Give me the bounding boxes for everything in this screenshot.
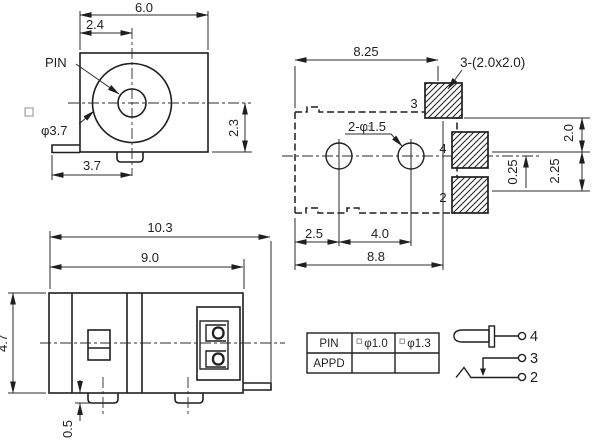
dim-height: 4.7 [0, 334, 10, 352]
pin-spec-table: PIN φ1.0 φ1.3 APPD [307, 333, 439, 373]
artifact-square [357, 339, 362, 344]
artifact-square [400, 339, 405, 344]
pad3-label: 3 [410, 96, 417, 111]
dim-boss-height: 0.5 [60, 420, 75, 438]
dim-footprint-bottom-width: 8.8 [367, 249, 385, 264]
schematic-terminal-2: 2 [530, 370, 538, 386]
dim-barrel-diameter: φ3.7 [41, 123, 68, 138]
contact-arrow-icon [480, 369, 486, 377]
front-left-lug [52, 145, 80, 153]
dim-hole-pitch: 4.0 [371, 226, 389, 241]
pad4-label: 4 [439, 141, 446, 156]
dim-pad-gap: 2.0 [561, 124, 576, 142]
holes-leader [345, 134, 402, 146]
pin-flange-symbol [489, 326, 495, 347]
dim-footprint-top-width: 8.25 [353, 44, 378, 59]
schematic-terminal-4: 4 [530, 329, 538, 345]
dim-hole-offset: 2.5 [305, 226, 323, 241]
table-cell-pin: PIN [319, 338, 338, 350]
terminal-2-node [518, 373, 525, 380]
footprint-bottom-edge [295, 208, 457, 213]
side-view: 10.3 9.0 4.7 0.5 [0, 220, 285, 438]
dim-center-offset: 0.25 [505, 159, 520, 184]
artifact-square [25, 108, 33, 116]
front-view: 6.0 2.4 PIN φ3.7 2.3 3.7 [25, 0, 252, 180]
center-pin-symbol [454, 330, 489, 342]
barrel-leader [79, 111, 94, 124]
table-cell-appd: APPD [313, 358, 344, 370]
side-right-lug [243, 383, 271, 390]
pad-2 [452, 177, 488, 213]
pad2-label: 2 [439, 190, 446, 205]
dim-overall-width: 10.3 [147, 220, 172, 235]
table-cell-dia-1-0: φ1.0 [364, 338, 387, 350]
front-bottom-boss [117, 152, 143, 162]
pad-3 [425, 83, 462, 118]
terminal-4-node [518, 332, 525, 339]
pin-label: PIN [45, 55, 67, 70]
dim-pad-pitch: 2.25 [547, 158, 562, 183]
dim-body-width: 9.0 [141, 250, 159, 265]
table-cell-dia-1-3: φ1.3 [407, 338, 430, 350]
footprint-view: 8.25 3-(2.0x2.0) 2-φ1.5 3 4 2 2.5 4.0 8.… [282, 44, 590, 270]
dim-tab-width: 3.7 [83, 158, 101, 173]
terminal-3-node [518, 354, 525, 361]
footprint-top-edge [295, 107, 425, 112]
side-window [88, 330, 110, 360]
front-body [80, 53, 208, 152]
side-boss-right [175, 393, 203, 403]
technical-drawing-sheet: 6.0 2.4 PIN φ3.7 2.3 3.7 [0, 0, 608, 445]
drawing-canvas: 6.0 2.4 PIN φ3.7 2.3 3.7 [0, 0, 608, 445]
dim-front-pin-offset: 2.4 [86, 17, 104, 32]
terminal-lower-slot [213, 354, 224, 365]
schematic: 4 3 2 [454, 326, 538, 386]
dim-center-to-bottom: 2.3 [226, 119, 241, 137]
schematic-terminal-3: 3 [530, 351, 538, 367]
terminal-upper-slot [213, 328, 224, 339]
pad-size-note: 3-(2.0x2.0) [460, 55, 525, 70]
dim-front-width: 6.0 [135, 0, 153, 15]
pad-4 [452, 132, 488, 168]
artifact-square [367, 126, 371, 130]
spring-contact-symbol [456, 368, 518, 378]
